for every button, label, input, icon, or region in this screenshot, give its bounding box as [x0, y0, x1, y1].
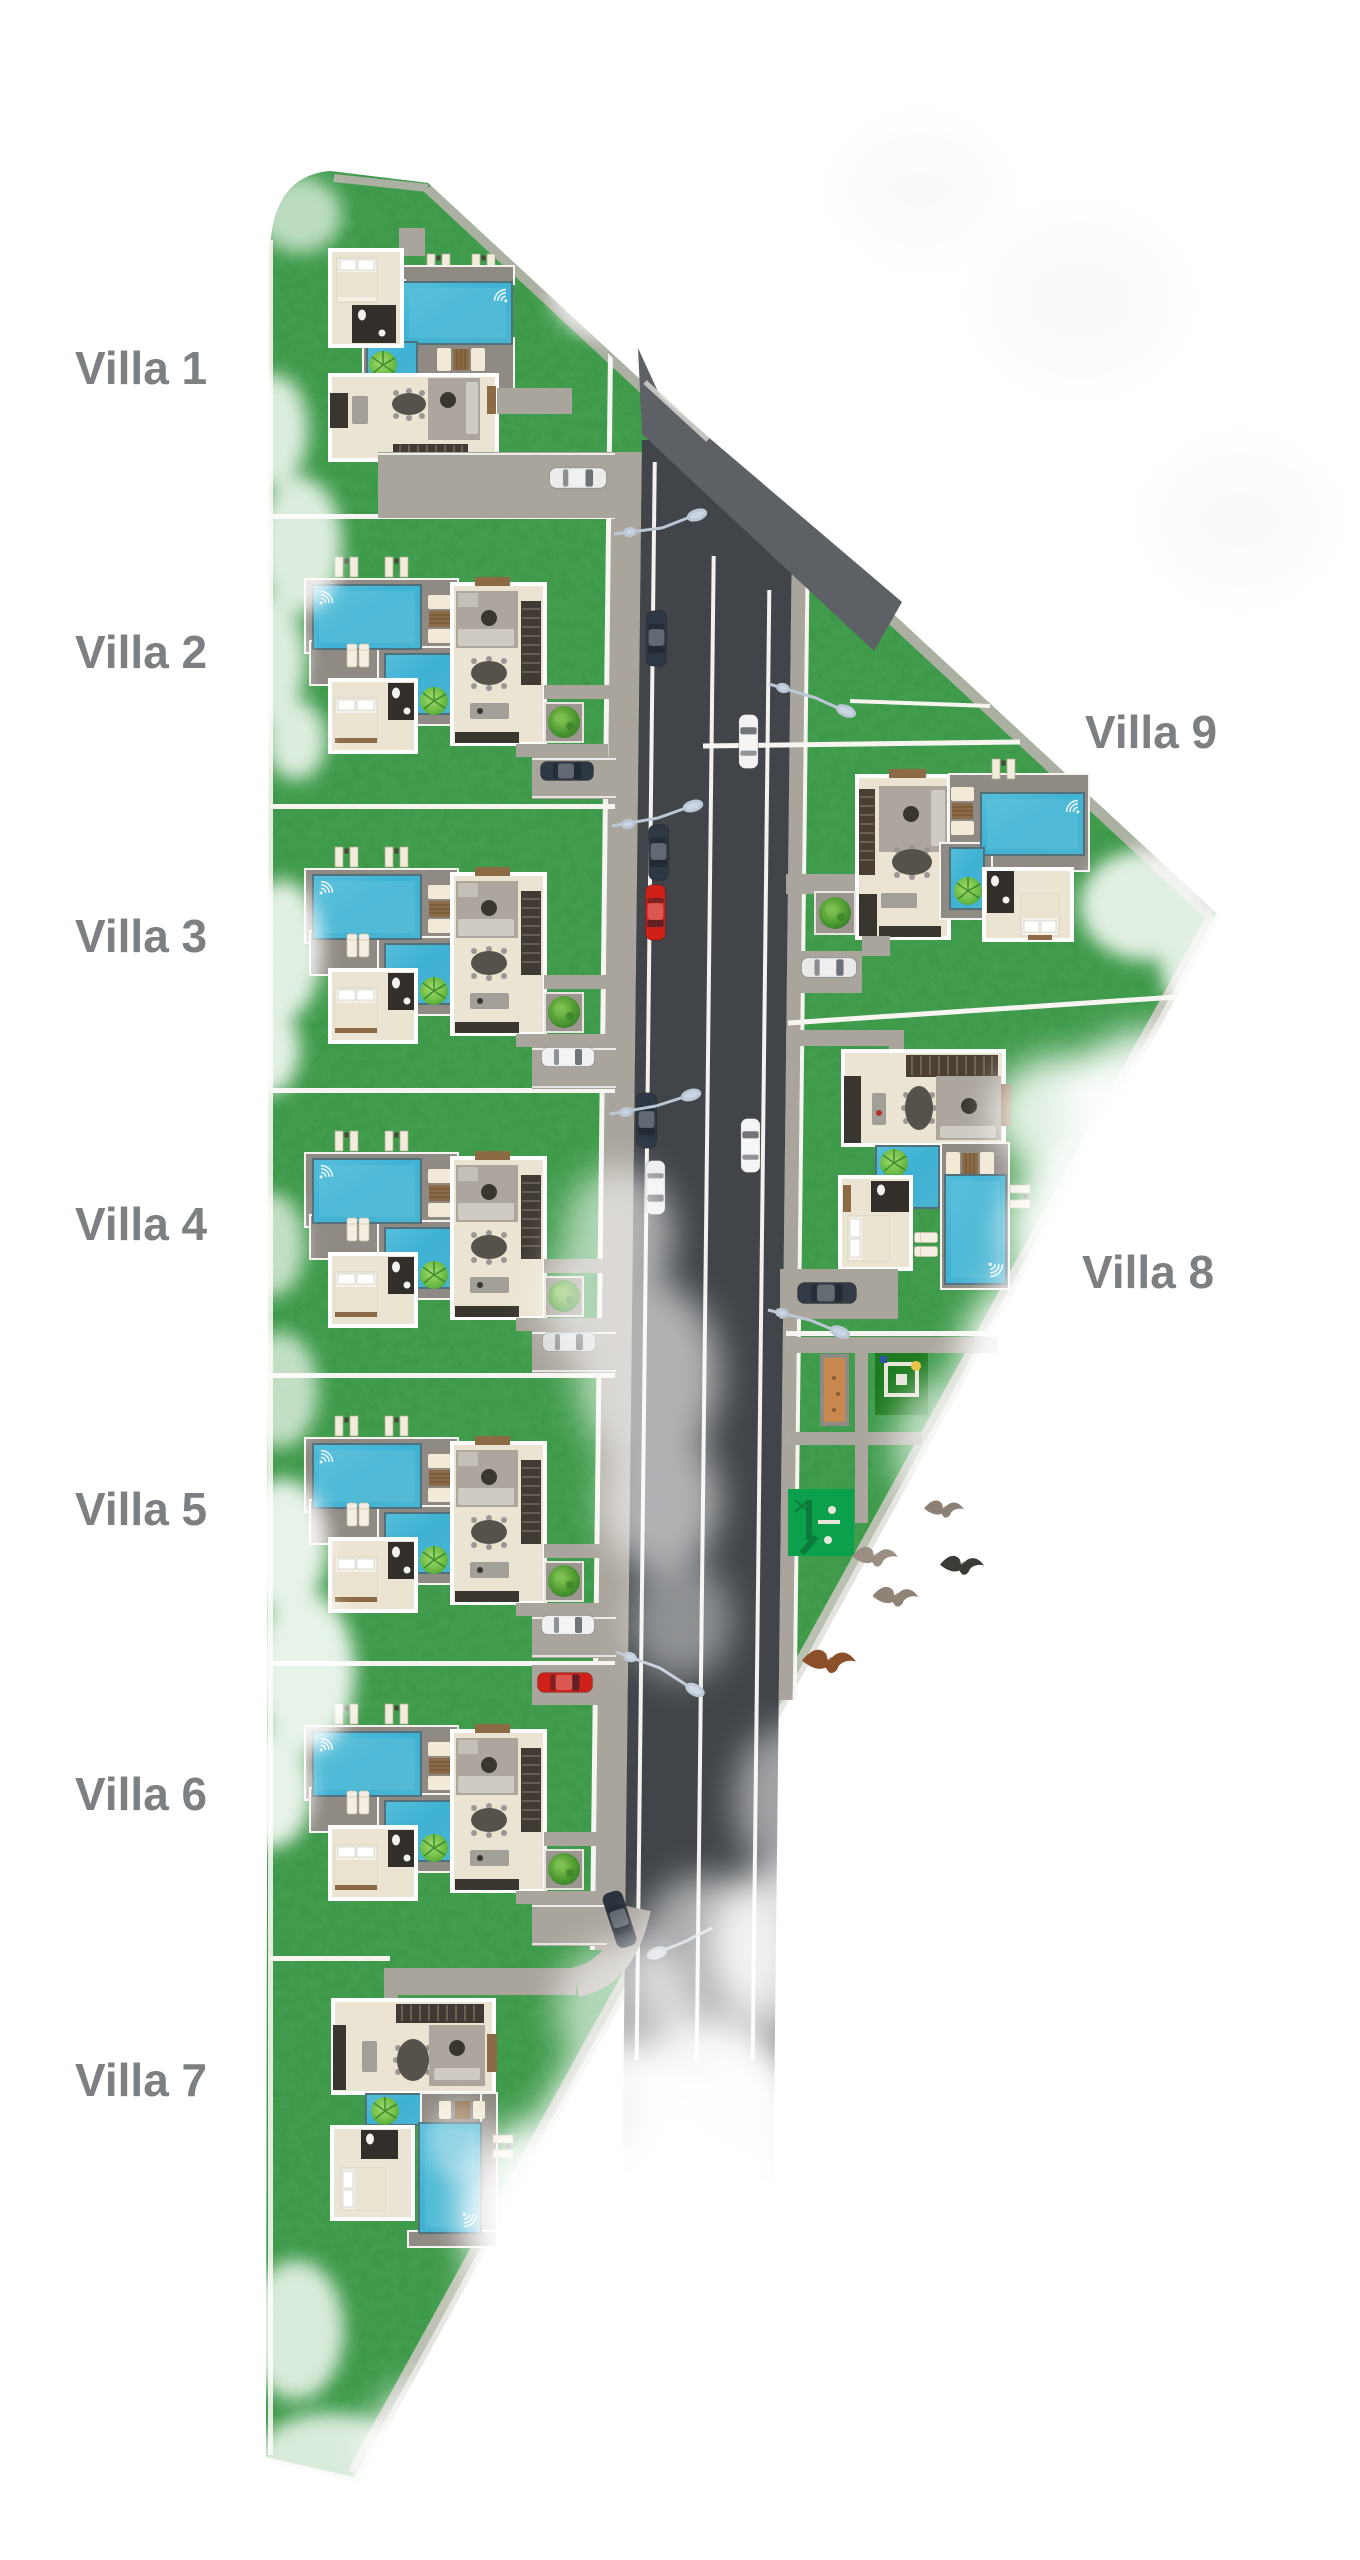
- svg-text:Villa 9: Villa 9: [1085, 706, 1217, 758]
- svg-text:Villa 7: Villa 7: [75, 2054, 207, 2106]
- svg-text:Villa 4: Villa 4: [75, 1198, 208, 1250]
- svg-text:Villa 2: Villa 2: [75, 626, 207, 678]
- svg-text:Villa 3: Villa 3: [75, 910, 207, 962]
- svg-text:Villa 1: Villa 1: [75, 342, 207, 394]
- svg-text:Villa 5: Villa 5: [75, 1483, 207, 1535]
- svg-text:Villa 6: Villa 6: [75, 1768, 207, 1820]
- svg-text:Villa 8: Villa 8: [1082, 1246, 1214, 1298]
